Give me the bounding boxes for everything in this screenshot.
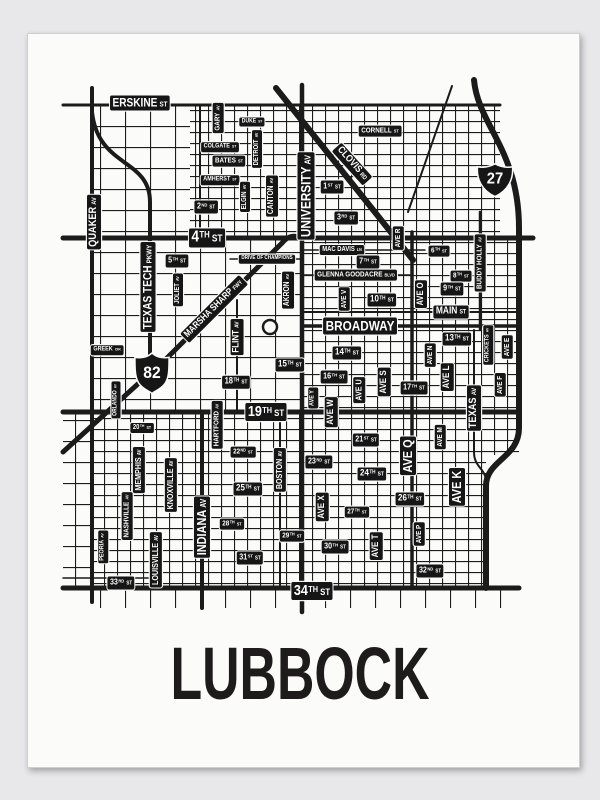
street-label: 17THST: [401, 382, 428, 395]
poster-title: LUBBOCK: [90, 637, 510, 711]
street-label: JOLIETAV: [173, 274, 183, 307]
street-label: AKRONAV: [282, 271, 294, 308]
street-label: 22NDST: [231, 447, 256, 458]
street-label: 31STST: [237, 552, 263, 565]
street-label: 19THST: [245, 403, 286, 421]
street-label: AVE T: [370, 532, 383, 560]
street-label: 21STST: [353, 434, 379, 447]
street-label: INDIANAAV: [194, 496, 210, 558]
street-label: 33RDST: [107, 577, 134, 590]
street-label: CORNELLST: [359, 126, 402, 137]
street-label: 15THST: [276, 359, 305, 372]
street-label: HARTFORDAV: [212, 401, 223, 449]
street-label: COLGATEST: [201, 142, 239, 152]
street-label: GLENNA GOODACREBLVD: [315, 270, 398, 281]
street-label: AVE Y: [308, 388, 318, 409]
street-label: TEXAS TECHPKWY: [141, 242, 156, 332]
street-label: 8THST: [451, 271, 472, 282]
street-label: BROADWAY: [323, 318, 397, 335]
lubbock-street-map-poster: ERSKINESTDUKESTCOLGATESTBATESSTAMHERSTST…: [0, 0, 600, 800]
street-label: DRIVE OF CHAMPIONS: [239, 255, 295, 264]
street-label: AVE V: [339, 287, 350, 310]
street-label: MEMPHISAV: [133, 447, 145, 493]
street-label: 34THST: [291, 582, 332, 600]
street-label: 32NDST: [416, 565, 443, 578]
street-label: GARYAV: [213, 103, 224, 133]
street-label: 30THST: [322, 541, 349, 554]
street-label: 29THST: [280, 531, 304, 542]
street-label: CLOVISRD: [332, 143, 372, 186]
street-label: 25THST: [234, 483, 263, 496]
interstate-27-number: 27: [478, 171, 513, 187]
street-label: CRICKETSAV: [483, 325, 493, 364]
street-label: 28THST: [220, 519, 244, 530]
street-label: 6THST: [429, 246, 450, 257]
street-label: 10THST: [368, 294, 397, 307]
street-label: ERSKINEST: [110, 96, 170, 111]
street-label: AVE K: [449, 468, 465, 506]
street-label: AVE Q: [400, 437, 416, 475]
street-label: PEORIAAV: [98, 531, 108, 564]
street-label: MAC DAVISLN: [320, 245, 365, 255]
street-label: TEXASAV: [467, 385, 481, 430]
street-label: 24THST: [358, 468, 387, 481]
street-label: AVE N: [425, 343, 436, 367]
street-label: 26THST: [396, 493, 425, 506]
street-label: 13THST: [443, 333, 472, 346]
us-82-route-number: 82: [135, 364, 170, 381]
street-label: AVE R: [393, 226, 404, 250]
street-label: 23RDST: [305, 456, 332, 469]
street-label: BOSTONAV: [274, 448, 286, 491]
street-label: ELGINAV: [240, 182, 250, 212]
street-label: 3RDST: [334, 212, 357, 225]
street-label: AVE L: [441, 363, 454, 391]
street-label: DUKEST: [239, 118, 264, 127]
street-label: AVE M: [435, 425, 446, 450]
street-label: CANTONAV: [266, 175, 278, 216]
street-label: AVE W: [325, 397, 338, 428]
interstate-27-shield: 27: [476, 161, 514, 199]
street-label: 2NDST: [194, 201, 217, 214]
street-label: DETROITAV: [252, 130, 262, 168]
street-label: ORLANDOAV: [112, 382, 121, 419]
street-label: AVE E: [502, 335, 513, 358]
street-label: AVE S: [378, 368, 391, 396]
street-label: 27THST: [345, 507, 369, 518]
us-82-route-shield: 82: [133, 352, 171, 394]
street-label: GREEKCIR: [91, 345, 123, 355]
street-label: 5THST: [166, 255, 189, 268]
street-label: NASHVILLEAV: [122, 492, 133, 540]
street-label: LOUISVILLEAV: [150, 532, 162, 587]
street-label: MAINST: [433, 306, 468, 319]
street-label: QUAKERAV: [87, 195, 101, 250]
street-label: BUDDY HOLLYAV: [475, 234, 486, 291]
street-label: FLINTAV: [231, 319, 244, 355]
street-label: 20THST: [130, 423, 153, 433]
street-label: 1STST: [321, 181, 343, 194]
street-label: 16THST: [321, 371, 348, 384]
street-label: BATESST: [212, 156, 245, 167]
street-label: AVE X: [316, 493, 329, 521]
street-label: 7THST: [357, 256, 380, 269]
street-label: AVE O: [415, 280, 427, 308]
street-label: AVE U: [353, 377, 365, 403]
street-label: AMHERSTST: [201, 175, 239, 185]
street-label: AVE F: [495, 373, 506, 396]
street-label: 14THST: [333, 347, 362, 360]
street-label: UNIVERSITYAV: [298, 152, 315, 239]
street-label: AVE P: [414, 522, 425, 545]
street-label: 4THST: [189, 229, 225, 248]
street-label: KNOXVILLEAV: [165, 458, 177, 512]
street-label: 9THST: [441, 283, 464, 296]
street-label: 18THST: [222, 376, 250, 389]
